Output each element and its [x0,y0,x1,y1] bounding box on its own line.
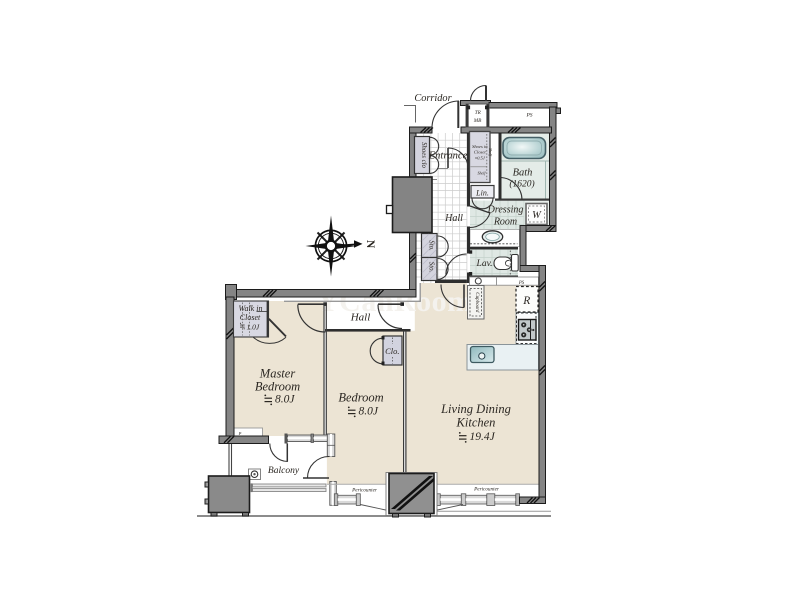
svg-text:8.0J: 8.0J [359,406,379,418]
svg-text:Corridor: Corridor [414,93,452,104]
svg-text:Entrance: Entrance [428,151,468,162]
svg-text:Kitchen: Kitchen [456,416,496,430]
svg-text:R: R [522,295,530,307]
svg-text:Bedroom: Bedroom [255,380,300,394]
svg-text:19.4J: 19.4J [470,431,496,443]
svg-text:P: P [238,431,242,436]
svg-text:Shoes in: Shoes in [472,144,488,149]
svg-text:Clo.: Clo. [385,346,399,356]
svg-text:Bath: Bath [513,168,533,179]
svg-text:N: N [364,240,376,249]
svg-text:Closet: Closet [240,313,261,322]
svg-text:Master: Master [259,367,296,381]
svg-text:TR: TR [475,110,482,116]
svg-text:Sto.: Sto. [427,240,434,251]
svg-text:Dressing: Dressing [487,205,524,216]
svg-text:Hall: Hall [350,312,371,324]
svg-text:≈0.5J: ≈0.5J [475,156,486,161]
svg-text:PS: PS [518,281,525,286]
svg-text:MB: MB [473,118,482,124]
svg-text:8.0J: 8.0J [275,394,295,406]
svg-text:Sto.: Sto. [427,262,434,273]
svg-text:Shelf: Shelf [478,171,487,176]
svg-text:W: W [532,210,542,221]
svg-text:1.0J: 1.0J [247,323,260,332]
svg-text:(1620): (1620) [509,179,534,190]
svg-text:Hall: Hall [444,213,463,224]
svg-text:Lav.: Lav. [476,259,493,269]
svg-text:PS: PS [525,113,532,119]
svg-text:Shelf: Shelf [488,148,492,157]
svg-text:Living Dining: Living Dining [440,402,511,416]
svg-text:Closet: Closet [474,150,486,155]
svg-text:Bedroom: Bedroom [338,391,383,405]
svg-text:Pericounter: Pericounter [473,487,500,493]
svg-text:Pericounter: Pericounter [351,488,378,494]
svg-text:Room: Room [493,217,517,228]
svg-text:Cupboard: Cupboard [474,292,479,313]
svg-text:Lin.: Lin. [475,189,489,198]
svg-text:Shoes clo: Shoes clo [420,142,427,168]
svg-text:Balcony: Balcony [268,466,300,476]
